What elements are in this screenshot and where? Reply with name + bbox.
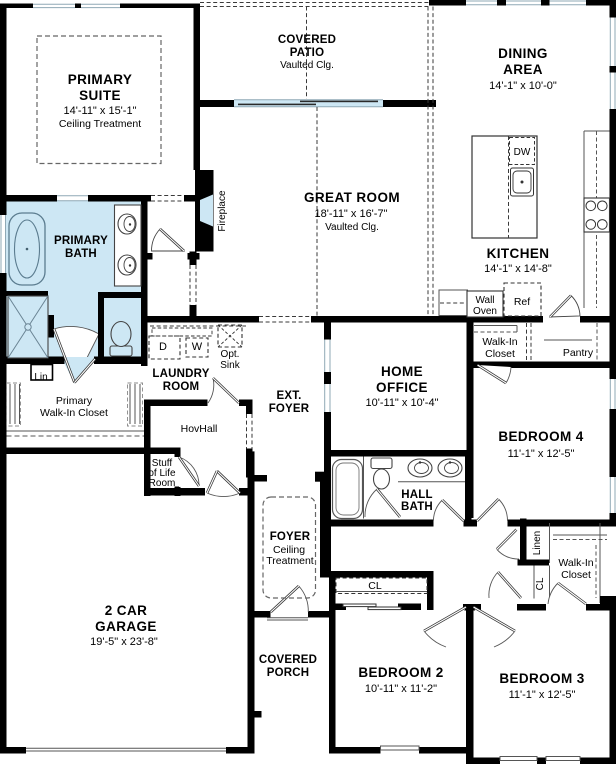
svg-text:Closet: Closet	[561, 569, 591, 581]
svg-text:Lin: Lin	[34, 372, 47, 383]
svg-text:DINING: DINING	[498, 46, 548, 61]
svg-text:LAUNDRY: LAUNDRY	[152, 368, 209, 380]
svg-text:CL: CL	[535, 577, 546, 590]
svg-text:SUITE: SUITE	[79, 88, 121, 103]
svg-text:COVERED: COVERED	[278, 34, 336, 46]
svg-text:Opt.: Opt.	[221, 349, 240, 360]
svg-text:Walk-In: Walk-In	[558, 557, 593, 569]
svg-text:11'-1" x 12'-5": 11'-1" x 12'-5"	[509, 689, 576, 701]
svg-text:Walk-In: Walk-In	[482, 336, 517, 348]
svg-text:11'-1" x 12'-5": 11'-1" x 12'-5"	[508, 448, 575, 460]
svg-text:Vaulted Clg.: Vaulted Clg.	[325, 222, 379, 233]
svg-text:BATH: BATH	[65, 248, 97, 260]
svg-text:14'-1" x 10'-0": 14'-1" x 10'-0"	[489, 80, 557, 92]
svg-text:W: W	[192, 341, 203, 353]
svg-text:PORCH: PORCH	[267, 667, 310, 679]
svg-text:BEDROOM 4: BEDROOM 4	[498, 429, 583, 444]
svg-text:18'-11" x 16'-7": 18'-11" x 16'-7"	[315, 208, 388, 220]
svg-text:AREA: AREA	[503, 62, 543, 77]
svg-text:Wall: Wall	[475, 295, 494, 306]
svg-text:Pantry: Pantry	[563, 347, 594, 359]
svg-text:PRIMARY: PRIMARY	[54, 235, 108, 247]
svg-text:BEDROOM 2: BEDROOM 2	[358, 665, 443, 680]
svg-text:2 CAR: 2 CAR	[105, 603, 148, 618]
svg-text:BEDROOM 3: BEDROOM 3	[499, 671, 584, 686]
svg-text:COVERED: COVERED	[259, 654, 317, 666]
svg-text:PRIMARY: PRIMARY	[68, 72, 133, 87]
svg-text:14'-11" x 15'-1": 14'-11" x 15'-1"	[64, 105, 137, 117]
svg-text:HovHall: HovHall	[181, 423, 218, 435]
svg-text:Treatment: Treatment	[266, 555, 314, 567]
svg-text:10'-11" x 10'-4": 10'-11" x 10'-4"	[366, 397, 439, 409]
svg-text:GREAT ROOM: GREAT ROOM	[304, 190, 400, 205]
svg-text:ROOM: ROOM	[163, 381, 200, 393]
svg-text:Ceiling Treatment: Ceiling Treatment	[59, 118, 141, 130]
svg-text:Primary: Primary	[56, 395, 93, 407]
svg-text:Oven: Oven	[473, 306, 497, 317]
svg-text:GARAGE: GARAGE	[95, 619, 157, 634]
svg-text:Room: Room	[149, 478, 176, 489]
svg-text:Ref: Ref	[514, 296, 530, 308]
svg-text:Vaulted Clg.: Vaulted Clg.	[280, 60, 334, 71]
svg-text:10'-11" x 11'-2": 10'-11" x 11'-2"	[365, 683, 437, 695]
svg-text:Closet: Closet	[485, 348, 515, 360]
svg-text:Linen: Linen	[532, 531, 543, 555]
svg-text:FOYER: FOYER	[269, 403, 310, 415]
svg-text:BATH: BATH	[401, 501, 433, 513]
svg-text:HOME: HOME	[381, 364, 423, 379]
svg-text:DW: DW	[514, 147, 531, 158]
svg-text:14'-1" x 14'-8": 14'-1" x 14'-8"	[484, 263, 552, 275]
svg-text:19'-5" x 23'-8": 19'-5" x 23'-8"	[90, 636, 158, 648]
svg-text:PATIO: PATIO	[290, 47, 324, 59]
svg-text:KITCHEN: KITCHEN	[487, 246, 550, 261]
svg-text:CL: CL	[368, 580, 382, 592]
svg-text:OFFICE: OFFICE	[376, 380, 428, 395]
svg-text:EXT.: EXT.	[276, 390, 301, 402]
svg-text:D: D	[159, 341, 167, 353]
svg-text:Walk-In Closet: Walk-In Closet	[40, 407, 108, 419]
svg-text:HALL: HALL	[401, 489, 432, 501]
svg-text:FOYER: FOYER	[270, 531, 311, 543]
svg-text:Sink: Sink	[220, 360, 240, 371]
svg-text:Fireplace: Fireplace	[217, 190, 228, 232]
